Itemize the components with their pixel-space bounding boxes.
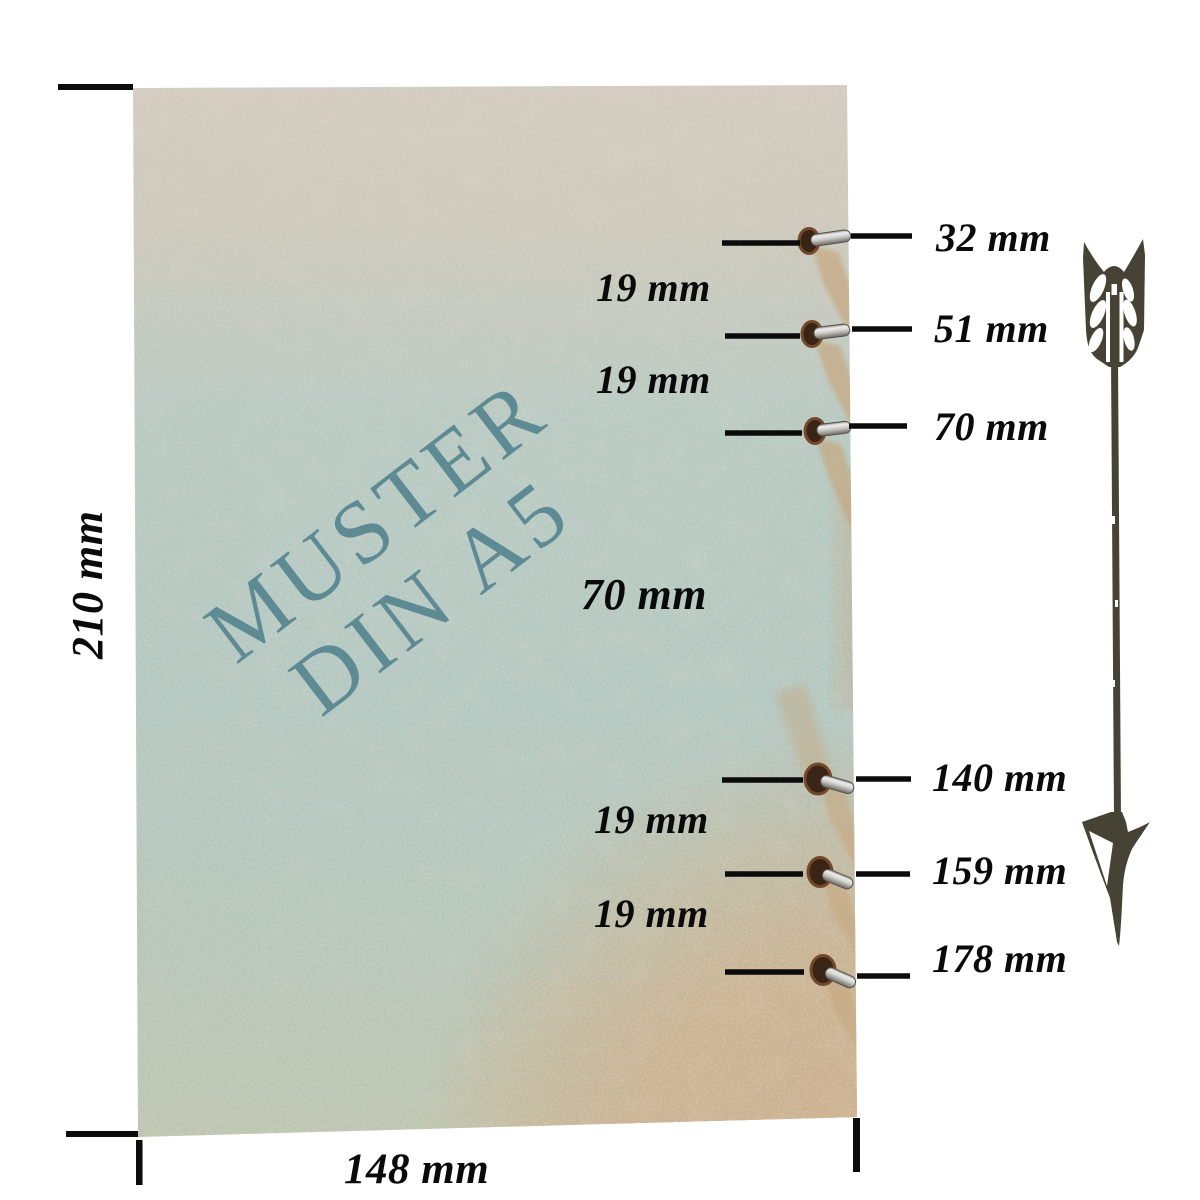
- svg-text:19 mm: 19 mm: [596, 357, 711, 402]
- svg-text:32 mm: 32 mm: [935, 215, 1051, 260]
- svg-text:19 mm: 19 mm: [594, 797, 709, 842]
- svg-text:19 mm: 19 mm: [596, 265, 711, 310]
- svg-text:70 mm: 70 mm: [934, 404, 1049, 449]
- svg-text:19 mm: 19 mm: [594, 891, 709, 936]
- svg-text:178 mm: 178 mm: [932, 936, 1067, 981]
- svg-text:148 mm: 148 mm: [344, 1146, 489, 1193]
- svg-text:140 mm: 140 mm: [932, 755, 1067, 800]
- svg-text:210 mm: 210 mm: [63, 511, 112, 660]
- svg-text:159 mm: 159 mm: [932, 848, 1067, 893]
- svg-text:70 mm: 70 mm: [581, 570, 707, 619]
- svg-text:51 mm: 51 mm: [934, 306, 1049, 351]
